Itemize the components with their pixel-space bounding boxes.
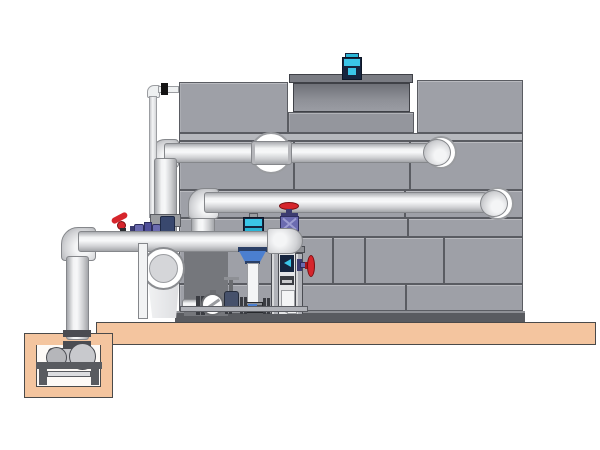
panel-seam <box>364 238 366 283</box>
sump-stand-shelf <box>47 371 91 377</box>
stand-base <box>266 314 307 322</box>
panel-seam <box>332 238 334 283</box>
sump-stand-leg <box>39 369 47 385</box>
tower-panel-top-right <box>417 80 523 133</box>
side-valve-handwheel <box>307 255 315 277</box>
gauge-arrow-icon <box>284 259 291 267</box>
riser-coupling <box>63 330 91 337</box>
pump-front-plate <box>138 243 148 319</box>
tower-panel-top-left <box>179 82 288 133</box>
pipe-elbow-head <box>480 190 508 217</box>
fan-motor-band <box>344 59 360 66</box>
mid-pipe-run <box>204 192 486 213</box>
sump-riser <box>66 256 89 340</box>
sump-stand-leg <box>91 369 99 385</box>
pump-column <box>247 263 259 304</box>
pipe-elbow-head <box>423 139 451 166</box>
header-end-cap <box>267 228 303 254</box>
tower-panel-center-recess <box>288 112 414 133</box>
sump-stand-plate <box>36 362 102 369</box>
stand-label-line <box>282 280 292 283</box>
panel-seam <box>405 285 407 310</box>
panel-seam <box>443 238 445 283</box>
skid-sill <box>180 306 308 312</box>
concrete-platform <box>96 322 596 345</box>
inline-pump-motor-band <box>245 219 262 226</box>
check-valve-tab <box>210 290 216 294</box>
makeup-flange <box>161 83 168 95</box>
fan-cowl-body <box>293 83 410 112</box>
tower-rail <box>179 133 523 141</box>
pump-inlet-bore <box>149 254 178 283</box>
upper-pipe-run <box>164 143 432 163</box>
fan-motor-window <box>348 68 356 75</box>
panel-seam <box>407 219 409 236</box>
pipe-coupling <box>251 141 292 165</box>
diagram-canvas <box>0 0 600 450</box>
